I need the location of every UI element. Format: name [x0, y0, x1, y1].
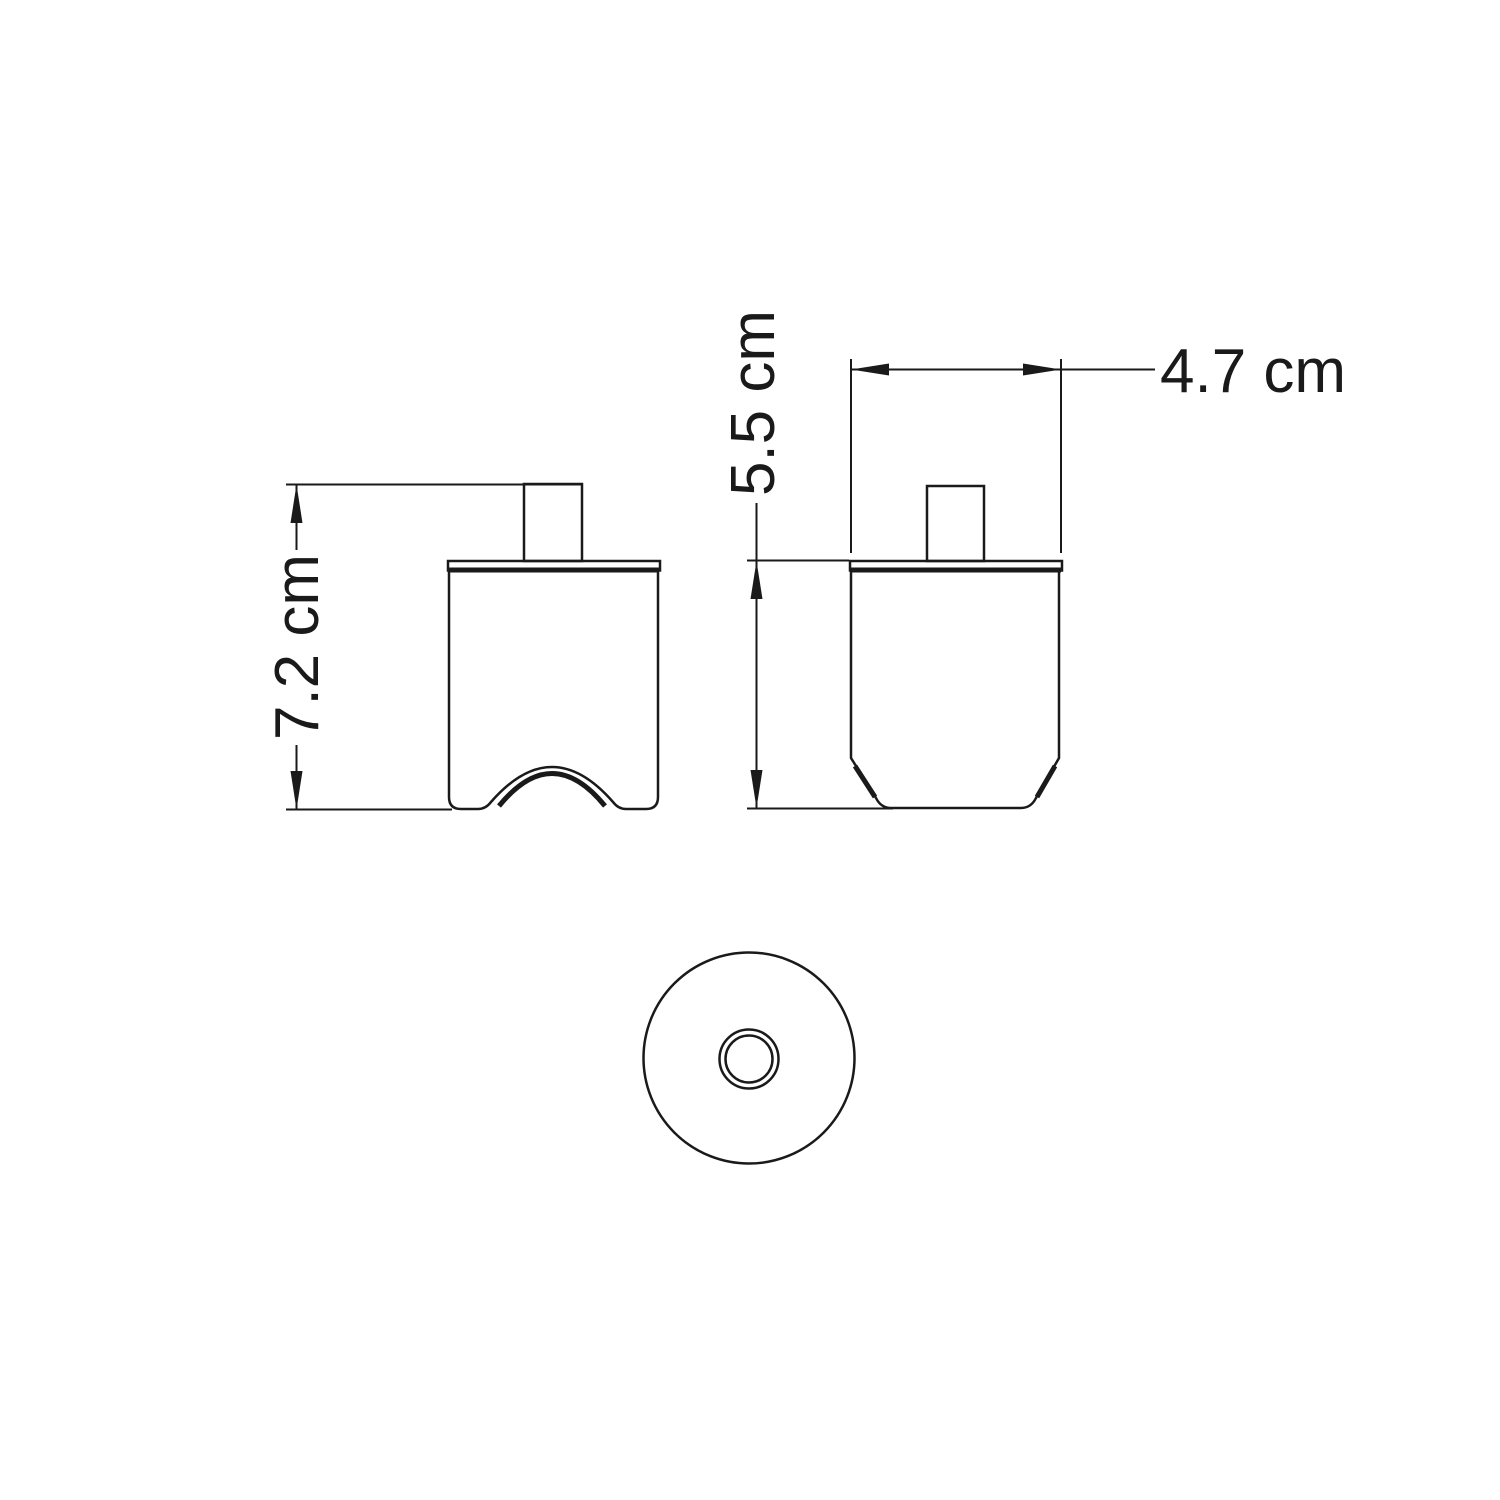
- arrow-down-icon: [291, 771, 303, 810]
- dim-width-label: 4.7 cm: [1160, 337, 1346, 406]
- front-arch-accent: [499, 774, 605, 807]
- dim-side-height-label: 5.5 cm: [719, 310, 788, 496]
- side-chamfer-accent-left: [855, 766, 875, 797]
- arrow-left-icon: [851, 364, 889, 376]
- arrow-up-icon: [751, 561, 763, 599]
- bottom-outline: [644, 953, 855, 1164]
- arrow-right-icon: [1023, 364, 1061, 376]
- side-stem: [927, 486, 984, 561]
- drawing-canvas: 7.2 cm 5.5 cm 4.7 cm: [0, 0, 1500, 1500]
- side-view: [850, 486, 1062, 808]
- arrow-down-icon: [751, 770, 763, 808]
- side-body: [851, 571, 1059, 808]
- dimension-side-height: 5.5 cm: [719, 310, 893, 809]
- bottom-hole-inner: [726, 1036, 773, 1083]
- front-stem: [524, 484, 582, 561]
- bottom-hole-outer: [720, 1030, 779, 1089]
- bottom-view: [644, 953, 855, 1164]
- arrow-up-icon: [291, 485, 303, 524]
- technical-drawing: 7.2 cm 5.5 cm 4.7 cm: [0, 0, 1500, 1500]
- dim-front-height-label: 7.2 cm: [263, 554, 332, 740]
- dimension-width: 4.7 cm: [851, 337, 1346, 553]
- front-view: [448, 484, 660, 809]
- side-chamfer-accent-right: [1037, 766, 1055, 797]
- dimension-front-height: 7.2 cm: [263, 485, 582, 810]
